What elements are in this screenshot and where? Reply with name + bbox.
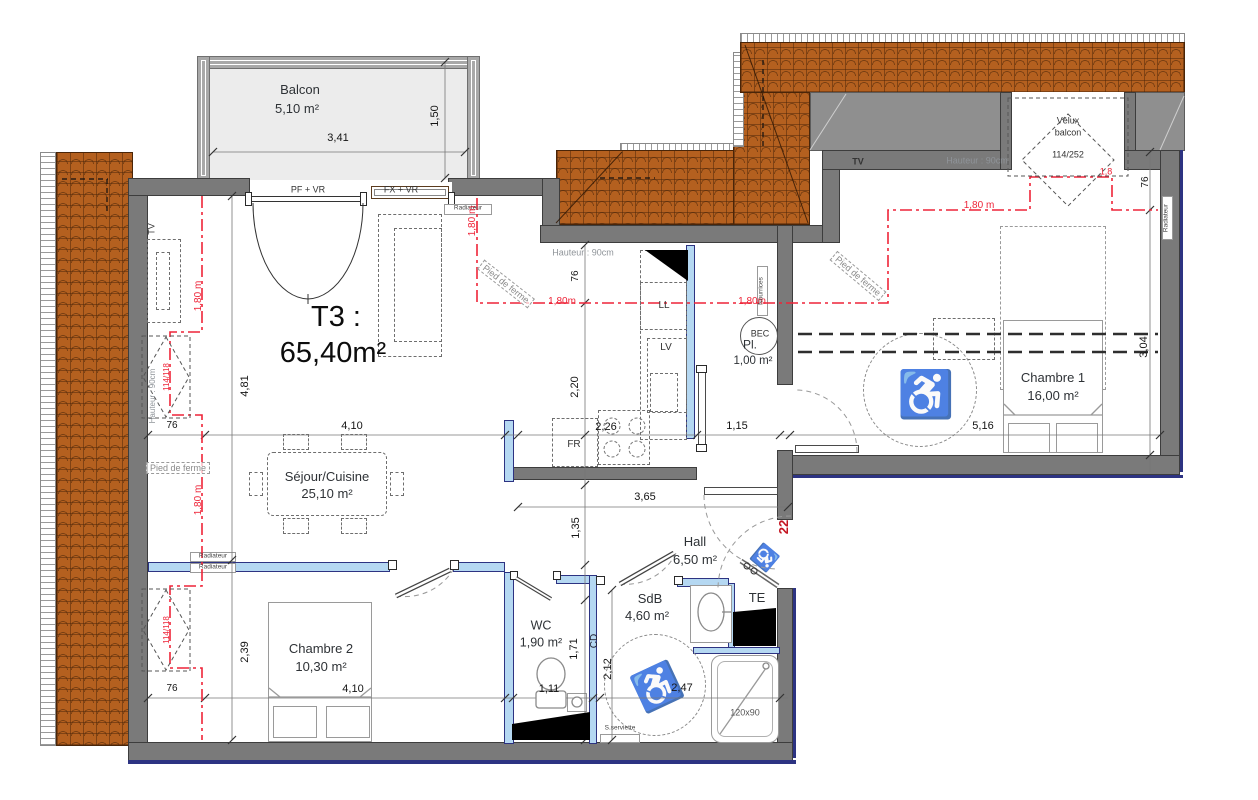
room-name-chambre1: Chambre 1	[1021, 371, 1085, 385]
dim-wc-depth: 1,71	[569, 638, 581, 659]
washbasin-counter	[690, 585, 732, 643]
dim-wc-width: 1,11	[539, 684, 560, 696]
room-area-placard: 1,00 m²	[734, 355, 773, 367]
shower-size-label: 120x90	[730, 708, 760, 717]
red-height-label: 1,80 m	[194, 281, 205, 312]
te-label: TE	[749, 591, 766, 605]
pillow	[273, 706, 317, 738]
wall-top-middle	[540, 225, 840, 243]
partition-sejour-stub	[504, 420, 514, 482]
towel-radiator	[600, 734, 640, 743]
kitchen-sink	[650, 373, 678, 412]
pillow	[1008, 423, 1050, 453]
room-area-wc: 1,90 m²	[520, 636, 562, 649]
dim-balcon-width: 3,41	[327, 133, 348, 145]
door-post	[510, 571, 518, 580]
wall-right-outline	[1180, 150, 1183, 472]
red-height-label: 1,80 m	[194, 485, 205, 516]
tv-screen	[156, 252, 170, 310]
dim-hall-width: 3,65	[634, 492, 655, 504]
radiator-label: Radiateur	[199, 554, 227, 561]
velux-roof-size: 114/252	[1052, 150, 1084, 159]
door-post	[450, 560, 459, 570]
fridge-label: FR	[567, 440, 580, 451]
balcony-door-arcs	[253, 203, 363, 304]
dim-76: 76	[1141, 176, 1152, 187]
door-leaf-chambre1	[795, 445, 859, 453]
wheelchair-icon: ♿	[897, 367, 954, 422]
door-post	[388, 560, 397, 570]
note-hauteur-kitchen: Hauteur : 90cm	[552, 248, 614, 257]
dim-placard-width: 1,15	[726, 421, 747, 433]
entry-door-number: 22	[777, 520, 791, 534]
dim-kitchen-width: 2,26	[595, 422, 616, 434]
balcony-wall-top	[197, 56, 480, 69]
balcony-wall-left	[197, 56, 210, 180]
room-name-chambre2: Chambre 2	[289, 642, 353, 656]
window-pf-frame	[250, 196, 365, 202]
door-leaf-placard	[704, 487, 778, 495]
partition-chambre2-wc	[504, 572, 514, 744]
room-area-chambre2: 10,30 m²	[295, 660, 346, 674]
dim-sdb-width: 2,47	[671, 683, 692, 695]
door-post	[696, 365, 707, 373]
door-post	[674, 576, 683, 585]
room-name-hall: Hall	[684, 535, 706, 549]
room-area-sdb: 4,60 m²	[625, 609, 669, 623]
partition-te-bottom	[693, 647, 780, 654]
dim-76: 76	[166, 684, 177, 695]
wall-sdb-right	[777, 588, 793, 755]
chair	[283, 434, 309, 450]
window-post	[245, 192, 252, 206]
radiator-label: Radiateur	[199, 565, 227, 572]
room-name-sejour: Séjour/Cuisine	[285, 470, 370, 484]
note-pied-de-ferme: Pied de ferme	[830, 251, 887, 301]
velux-size-left: 114/118	[163, 363, 171, 391]
red-height-label: 1,8	[1100, 167, 1113, 176]
dim-sdb-height: 2,12	[603, 658, 615, 679]
radiator-label: Radiateur	[1164, 204, 1171, 232]
cd-label: CD	[590, 634, 601, 648]
note-hauteur-chambre1: Hauteur : 90cm	[946, 156, 1008, 165]
roof-gutter-left	[40, 152, 56, 746]
wall-kitchen-bottom	[505, 467, 697, 480]
roof-tiles-top-right	[740, 42, 1185, 93]
door-post	[596, 576, 605, 585]
wall-sdb-right-outline	[793, 588, 796, 758]
balcony-wall-right	[467, 56, 480, 180]
wall-bottom	[128, 742, 793, 762]
velux-roof-name1: Vélux	[1057, 116, 1080, 125]
dim-hall-depth: 1,35	[571, 517, 583, 538]
wheelchair-icon: ♿	[747, 540, 782, 575]
pillow	[326, 706, 370, 738]
roof-tiles-left	[56, 152, 133, 746]
wall-bottom-outline	[128, 760, 796, 764]
door-post	[696, 444, 707, 452]
room-name-balcon: Balcon	[280, 83, 320, 97]
room-area-hall: 6,50 m²	[673, 553, 717, 567]
red-height-label: 1,80 m	[468, 206, 479, 237]
towel-radiator-label: S.serviette	[605, 726, 636, 733]
note-hauteur-left: Hauteur : 90cm	[149, 369, 157, 424]
hob	[598, 410, 650, 465]
tv-label: TV	[852, 157, 864, 166]
dim-sejour-height: 4,81	[240, 375, 252, 396]
hand-basin	[567, 693, 587, 712]
chair	[341, 434, 367, 450]
wall-chambre1-bottom-outline	[790, 475, 1183, 478]
room-name-sdb: SdB	[638, 592, 663, 606]
wall-top-left-a	[128, 178, 250, 196]
partition-wc-top	[556, 575, 590, 584]
dim-76: 76	[166, 421, 177, 432]
dim-kitchen-height: 2,20	[570, 376, 582, 397]
room-name-wc: WC	[531, 619, 552, 632]
dim-chambre2-width: 4,10	[342, 684, 363, 696]
red-height-label: 1,80 m	[964, 201, 995, 212]
tv-label: TV	[147, 223, 156, 235]
manifold-label: Nourrices	[759, 277, 766, 305]
velux-roof-name2: balcon	[1055, 128, 1082, 137]
chair	[390, 472, 404, 496]
red-height-label: 1,80m	[548, 297, 576, 308]
door-leaf-kitchen	[698, 372, 706, 446]
wall-hall-chambre1-upper	[777, 225, 793, 385]
window-post	[360, 192, 367, 206]
partition-sejour-chambre2	[148, 562, 390, 572]
plan-title-area: 65,40m²	[280, 338, 386, 368]
washing-machine-label: LL	[658, 301, 669, 312]
room-area-chambre1: 16,00 m²	[1027, 389, 1078, 403]
velux-size-left: 114/118	[163, 616, 171, 644]
door-post	[553, 571, 561, 580]
dim-76: 76	[571, 270, 582, 281]
floor-plan: ♿ ♿ ♿	[0, 0, 1258, 800]
chair	[341, 518, 367, 534]
chair	[249, 472, 263, 496]
dim-chambre2-height: 2,39	[240, 641, 252, 662]
dishwasher-label: LV	[660, 343, 672, 354]
wall-hall-chambre1-lower	[777, 450, 793, 520]
room-name-placard: Pl.	[743, 339, 757, 352]
partition-kitchen	[686, 245, 695, 439]
dim-chambre1-height: 3,04	[1139, 336, 1151, 357]
partition-wc-sdb	[589, 575, 597, 744]
room-area-sejour: 25,10 m²	[301, 487, 352, 501]
shower-tray	[717, 661, 773, 737]
room-area-balcon: 5,10 m²	[275, 102, 319, 116]
dim-balcon-depth: 1,50	[430, 105, 442, 126]
chair	[283, 518, 309, 534]
sofa-cushions	[394, 228, 442, 342]
note-pied-de-ferme: Pied de ferme	[477, 260, 535, 309]
wall-chambre1-bottom	[790, 455, 1180, 475]
pillow	[1056, 423, 1098, 453]
window-label-pf: PF + VR	[291, 185, 325, 194]
note-pied-de-ferme: Pied de ferme	[146, 462, 210, 474]
dim-chambre1-width: 5,16	[972, 421, 993, 433]
dim-sejour-width: 4,10	[341, 421, 362, 433]
partition-sejour-chambre2-b	[453, 562, 505, 572]
window-label-fx: FX + VR	[384, 185, 418, 194]
plan-title-type: T3 :	[311, 302, 361, 332]
